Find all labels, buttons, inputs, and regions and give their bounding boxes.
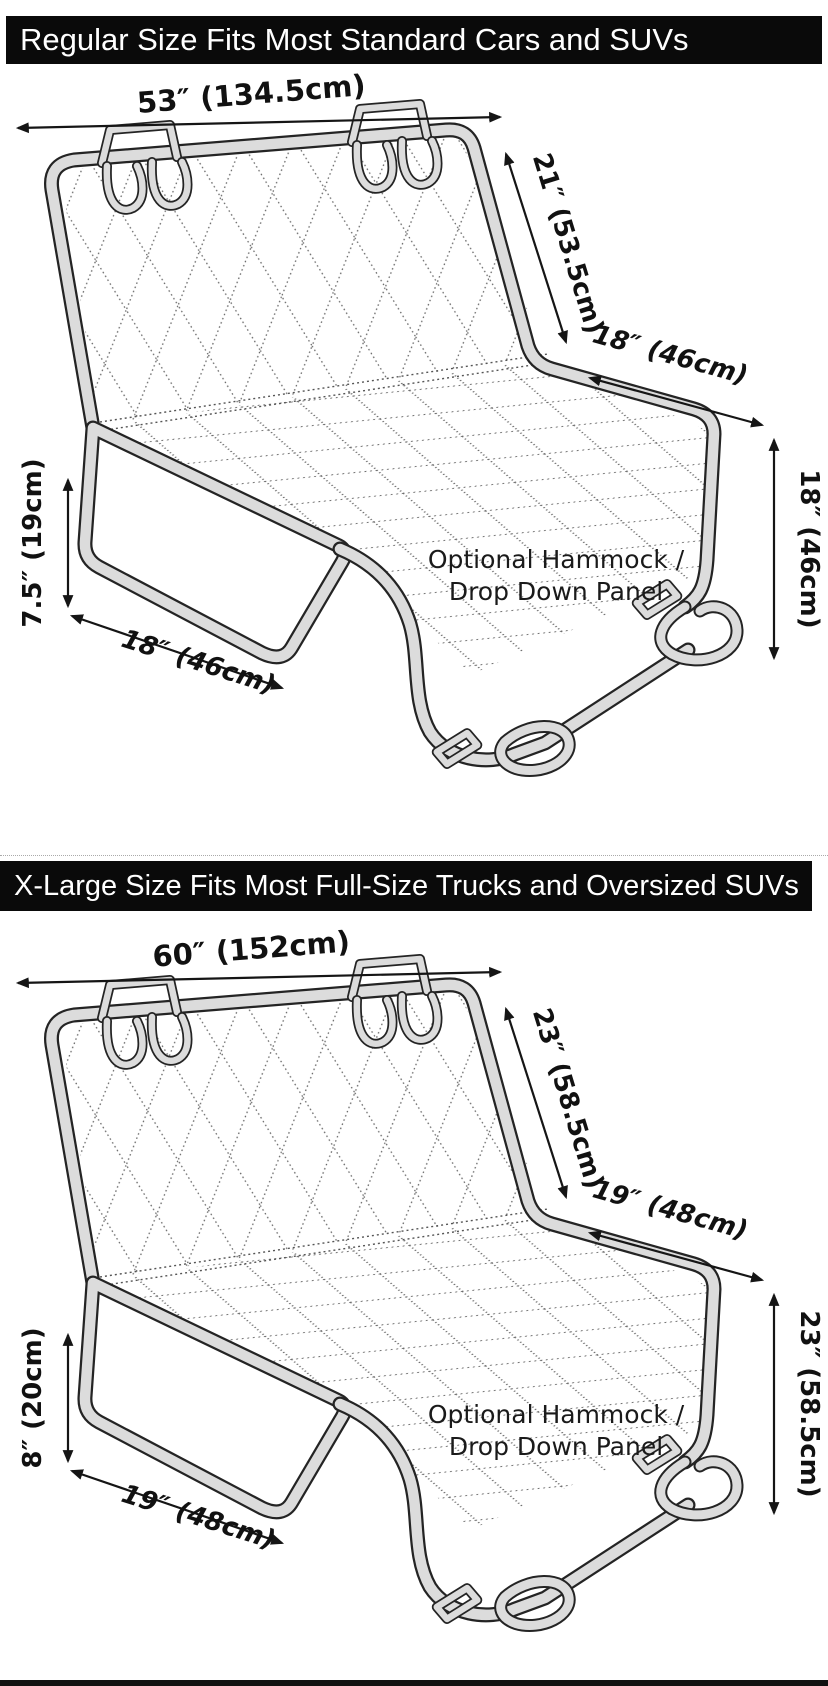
infographic-page: Regular Size Fits Most Standard Cars and… (0, 0, 828, 1686)
dim-top-width-label: 53″ (134.5cm) (136, 68, 367, 120)
dim-flap-height-label: 7.5″ (19cm) (18, 458, 48, 627)
section-separator (0, 855, 828, 856)
hammock-caption-line1: Optional Hammock / (428, 1400, 685, 1429)
hammock-caption-line2: Drop Down Panel (449, 1432, 663, 1461)
seat-cover-diagram: 53″ (134.5cm) 21″ (53.5cm) 18″ (46cm) 18… (0, 60, 828, 798)
diagram-regular-wrap: 53″ (134.5cm) 21″ (53.5cm) 18″ (46cm) 18… (0, 60, 828, 803)
dim-side-drop-label: 18″ (46cm) (794, 469, 824, 628)
hammock-caption-line2: Drop Down Panel (449, 577, 663, 606)
dim-flap-width-label: 18″ (46cm) (118, 624, 279, 701)
dim-back-height-label: 23″ (58.5cm) (526, 1005, 609, 1193)
dim-side-drop-label: 23″ (58.5cm) (794, 1310, 824, 1497)
seat-cover-diagram-xlarge: 60″ (152cm) 23″ (58.5cm) 19″ (48cm) 23″ … (0, 915, 828, 1653)
side-strap-curl (661, 607, 737, 660)
hammock-caption-line1: Optional Hammock / (428, 545, 685, 574)
dim-flap-height-label: 8″ (20cm) (18, 1327, 48, 1468)
banner-regular: Regular Size Fits Most Standard Cars and… (6, 16, 822, 64)
bottom-crop-strip (0, 1680, 828, 1686)
dim-flap-width-label: 19″ (48cm) (118, 1479, 279, 1556)
banner-xlarge: X-Large Size Fits Most Full-Size Trucks … (0, 861, 812, 911)
diagram-xlarge-wrap: 60″ (152cm) 23″ (58.5cm) 19″ (48cm) 23″ … (0, 915, 828, 1658)
dim-back-height-label: 21″ (53.5cm) (526, 150, 609, 338)
side-strap-curl (661, 1462, 737, 1515)
dim-top-width-label: 60″ (152cm) (151, 924, 351, 973)
